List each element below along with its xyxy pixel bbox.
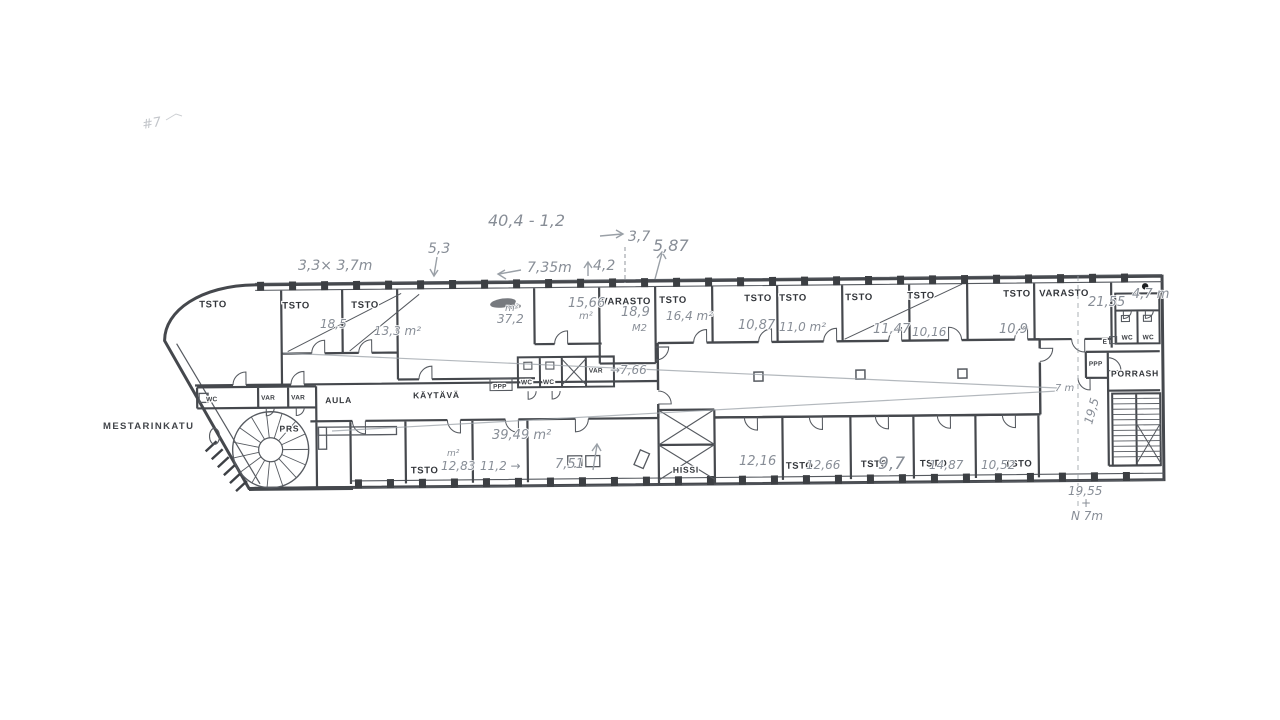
room-label-wc-left: WC	[206, 396, 217, 403]
room-label-tsto-7: TSTO	[845, 292, 873, 303]
room-label-varasto-right: VARASTO	[1039, 288, 1089, 299]
area-13-3: 13,3 m²	[374, 324, 421, 338]
label-e: E	[1103, 339, 1108, 346]
area-10-52: 10,52	[981, 458, 1015, 472]
room-label-aula: AULA	[325, 395, 352, 405]
dim-plus: +	[1081, 496, 1091, 510]
dim-5-87: 5,87	[653, 236, 689, 255]
dim-40-4: 40,4 - 1,2	[488, 211, 565, 230]
area-11-2: 11,2 →	[480, 459, 521, 473]
dim-3-3x3-7: 3,3× 3,7m	[298, 258, 372, 274]
dim-21-55: 21,55	[1088, 295, 1125, 310]
area-15-66-unit: m²	[579, 311, 593, 322]
area-7-51: 7,51	[555, 457, 584, 472]
room-label-tsto-4: TSTO	[659, 295, 687, 306]
room-label-tsto-9: TSTO	[1003, 288, 1031, 299]
label-ppp-right: PPP	[1089, 361, 1103, 368]
dim-19-5: 19,5	[1081, 396, 1101, 425]
area-12-83-unit: m²	[447, 449, 460, 459]
room-label-prs: PRS	[279, 423, 299, 433]
room-label-wc-mid-2: WC	[543, 379, 554, 386]
dim-7-35: 7,35m	[527, 260, 572, 276]
area-16-4: 16,4 m²	[666, 309, 713, 323]
room-label-hissi: HISSI	[673, 465, 699, 475]
room-label-wc-mid-1: WC	[521, 379, 532, 386]
room-label-porrash: PORRASH	[1111, 368, 1159, 378]
room-label-tsto-1: TSTO	[199, 299, 227, 310]
room-label-tsto-5: TSTO	[744, 293, 772, 304]
dim-3-7: 3,7	[628, 229, 650, 245]
room-label-tsto-2: TSTO	[282, 300, 310, 311]
area-18-9: 18,9	[621, 305, 650, 320]
area-12-66: 12,66	[806, 458, 841, 472]
dim-4-7: 4,7 m	[1132, 287, 1169, 302]
room-label-var-1: VAR	[261, 395, 275, 402]
area-18-5: 18,5	[320, 317, 347, 331]
area-10-87: 10,87	[738, 318, 776, 333]
room-label-wc-right-1: WC	[1122, 334, 1133, 341]
stairwell	[1112, 393, 1161, 465]
dim-7-66: →7,66	[610, 363, 647, 377]
area-12-16: 12,16	[739, 454, 776, 469]
area-37-2: 37,2	[497, 312, 524, 326]
room-label-tsto-8: TSTO	[907, 290, 935, 301]
label-ppp-left: PPP	[493, 383, 507, 390]
room-label-kaytava: KÄYTÄVÄ	[413, 390, 460, 400]
room-label-wc-right-2: WC	[1143, 334, 1154, 341]
street-label: MESTARINKATU	[103, 421, 194, 432]
dim-5-3: 5,3	[428, 241, 450, 257]
area-39-49: 39,49 m²	[492, 428, 551, 443]
dim-7m: 7 m	[1055, 383, 1075, 394]
room-label-tsto-b1: TSTO	[411, 465, 439, 476]
area-15-66: 15,66	[568, 296, 605, 311]
svg-text:#7: #7	[141, 115, 163, 133]
dim-n-7m: N 7m	[1071, 509, 1103, 523]
scanned-floor-plan: TSTO TSTO TSTO TSTO TSTO TSTO TSTO TSTO …	[0, 0, 1280, 720]
area-11-47: 11,47	[873, 322, 911, 337]
area-9-7: 9,7	[878, 454, 905, 474]
area-18-9-unit: M2	[632, 323, 647, 334]
dim-4-2: 4,2	[593, 258, 615, 274]
room-label-tsto-3: TSTO	[351, 300, 379, 311]
room-label-var-2: VAR	[291, 394, 305, 401]
area-11-0: 11,0 m²	[779, 320, 826, 334]
room-label-tsto-6: TSTO	[779, 293, 807, 304]
area-10-9: 10,9	[999, 322, 1028, 337]
area-14-87: 14,87	[929, 458, 964, 472]
room-label-var-3: VAR	[589, 368, 603, 375]
corner-scribble: #7	[141, 114, 182, 133]
floor-plan-svg: TSTO TSTO TSTO TSTO TSTO TSTO TSTO TSTO …	[0, 0, 1280, 720]
area-10-16: 10,16	[912, 325, 947, 339]
area-12-83: 12,83	[441, 459, 475, 473]
